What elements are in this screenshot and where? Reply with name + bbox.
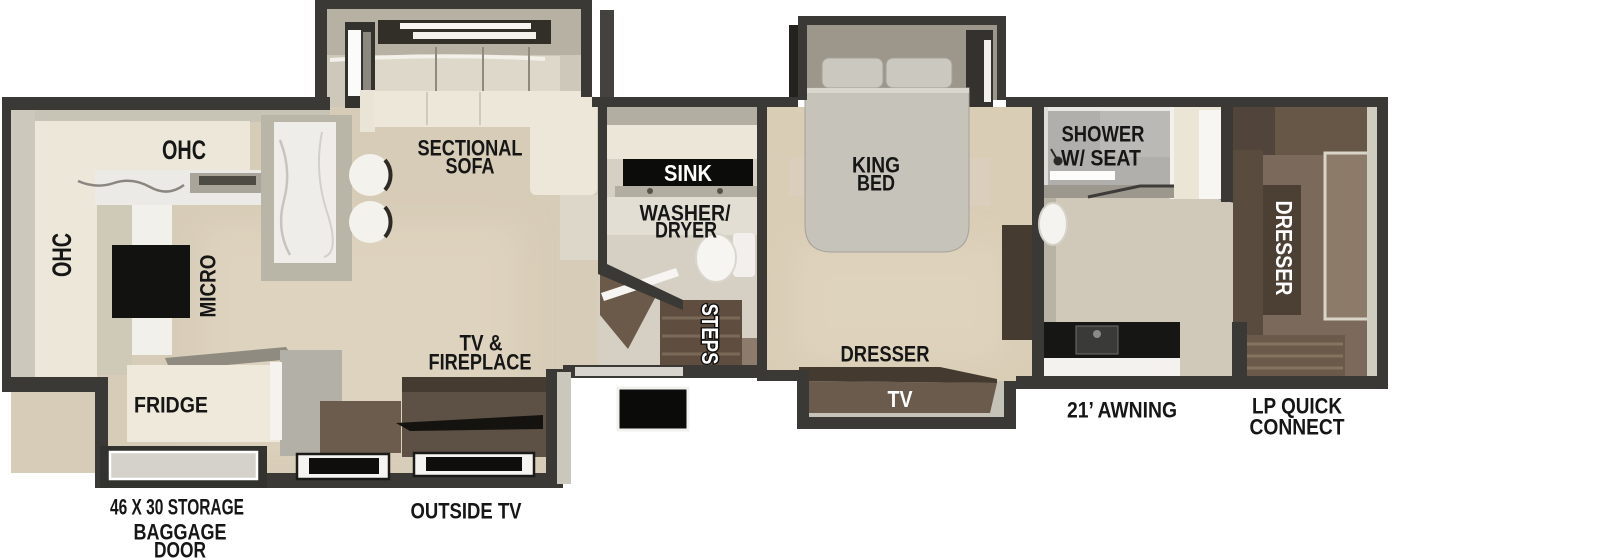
svg-text:DRYER: DRYER xyxy=(655,218,717,243)
svg-text:DRESSER: DRESSER xyxy=(841,342,930,367)
svg-text:DOOR: DOOR xyxy=(154,538,206,560)
svg-text:SHOWER: SHOWER xyxy=(1062,122,1145,147)
svg-text:SOFA: SOFA xyxy=(446,154,495,179)
svg-text:CONNECT: CONNECT xyxy=(1250,415,1345,440)
svg-text:TV: TV xyxy=(888,386,914,412)
svg-text:FIREPLACE: FIREPLACE xyxy=(429,350,532,375)
svg-text:21’ AWNING: 21’ AWNING xyxy=(1067,398,1177,423)
svg-text:SINK: SINK xyxy=(664,160,712,186)
svg-text:MICRO: MICRO xyxy=(196,255,221,318)
svg-text:OUTSIDE TV: OUTSIDE TV xyxy=(411,499,522,524)
svg-text:OHC: OHC xyxy=(47,233,77,277)
svg-text:STEPS: STEPS xyxy=(697,304,723,365)
svg-text:46 X 30 STORAGE: 46 X 30 STORAGE xyxy=(110,495,244,520)
svg-text:BED: BED xyxy=(857,171,895,196)
svg-text:DRESSER: DRESSER xyxy=(1271,201,1297,296)
svg-text:FRIDGE: FRIDGE xyxy=(134,393,208,418)
svg-text:OHC: OHC xyxy=(162,135,206,165)
svg-text:W/ SEAT: W/ SEAT xyxy=(1061,146,1141,171)
